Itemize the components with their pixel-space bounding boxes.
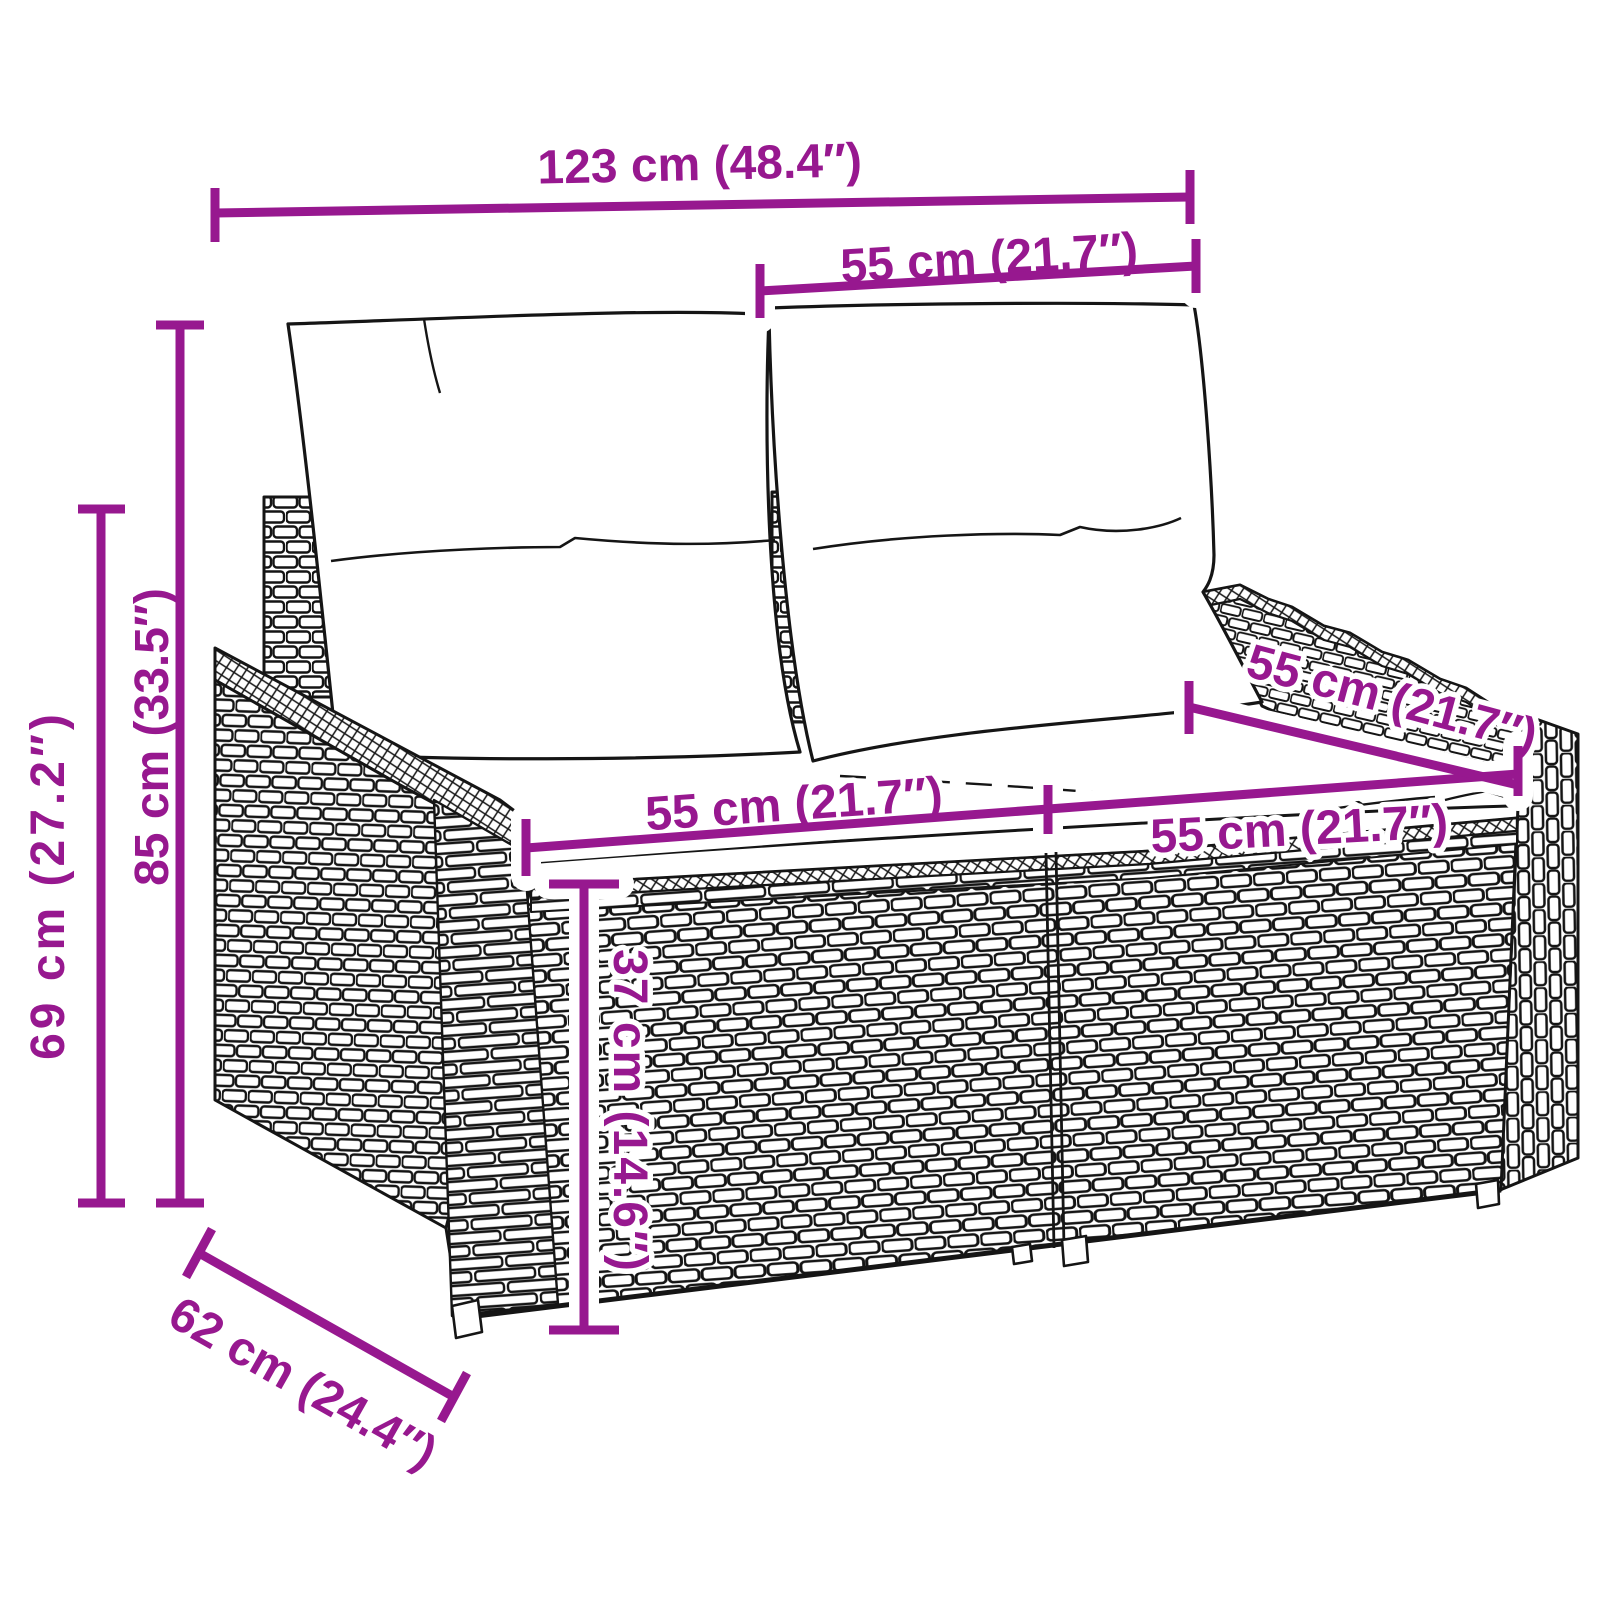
svg-text:37 cm (14.6″): 37 cm (14.6″) bbox=[603, 949, 656, 1273]
svg-text:69 cm (27.2″): 69 cm (27.2″) bbox=[22, 710, 75, 1060]
svg-text:85 cm (33.5″): 85 cm (33.5″) bbox=[126, 588, 179, 886]
svg-text:123 cm (48.4″): 123 cm (48.4″) bbox=[537, 134, 863, 194]
